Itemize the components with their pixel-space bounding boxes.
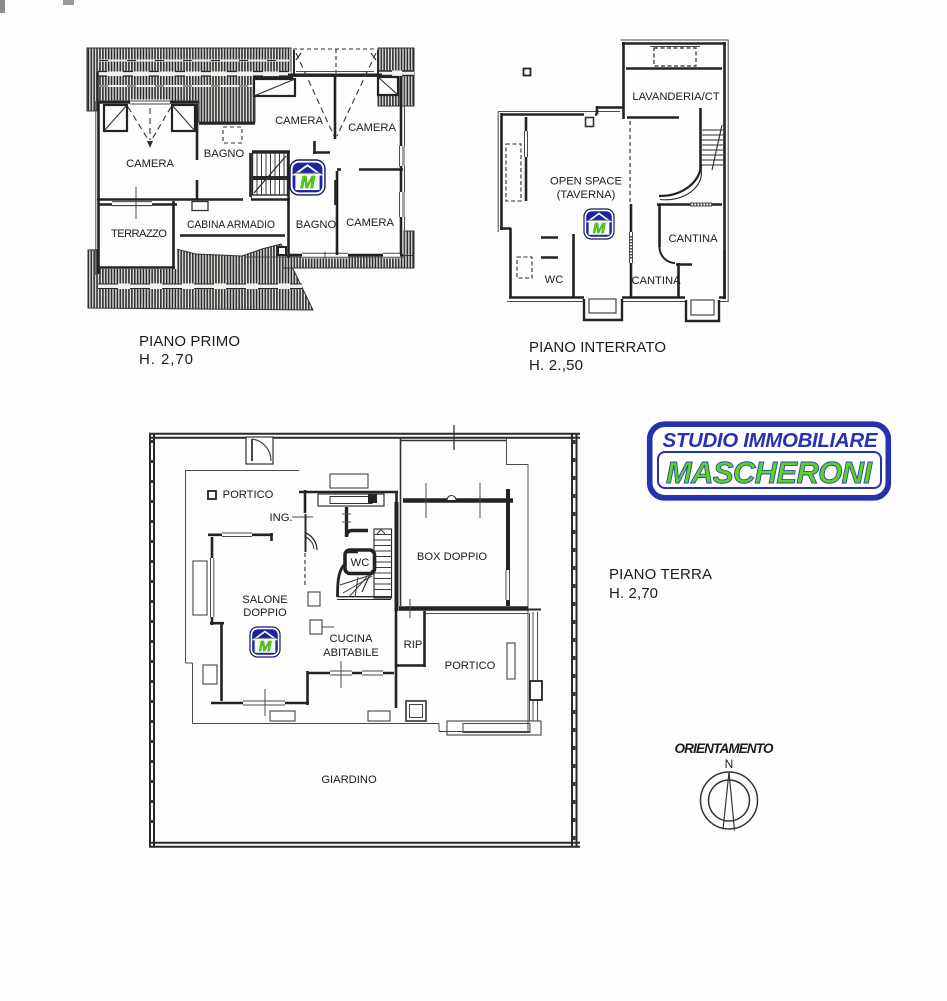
svg-text:CUCINA: CUCINA bbox=[330, 633, 373, 645]
svg-text:CAMERA: CAMERA bbox=[275, 115, 323, 127]
svg-text:ABITABILE: ABITABILE bbox=[323, 647, 379, 659]
svg-text:(TAVERNA): (TAVERNA) bbox=[557, 189, 616, 201]
svg-text:OPEN SPACE: OPEN SPACE bbox=[550, 176, 622, 188]
svg-text:PIANO PRIMO: PIANO PRIMO bbox=[139, 333, 240, 350]
svg-text:TERRAZZO: TERRAZZO bbox=[111, 228, 167, 240]
svg-text:N: N bbox=[725, 757, 734, 771]
svg-text:PIANO INTERRATO: PIANO INTERRATO bbox=[529, 339, 666, 356]
svg-text:BAGNO: BAGNO bbox=[296, 219, 337, 231]
svg-text:MASCHERONI: MASCHERONI bbox=[666, 455, 873, 490]
svg-text:H. 2,70: H. 2,70 bbox=[609, 585, 658, 602]
svg-text:BAGNO: BAGNO bbox=[204, 148, 245, 160]
svg-text:PORTICO: PORTICO bbox=[445, 660, 496, 672]
svg-text:LAVANDERIA/CT: LAVANDERIA/CT bbox=[632, 91, 719, 103]
svg-text:ORIENTAMENTO: ORIENTAMENTO bbox=[675, 741, 774, 756]
svg-text:RIP: RIP bbox=[404, 639, 423, 651]
svg-text:CANTINA: CANTINA bbox=[668, 233, 718, 245]
svg-text:H. 2,70: H. 2,70 bbox=[139, 351, 193, 368]
svg-text:CAMERA: CAMERA bbox=[346, 217, 394, 229]
svg-text:PIANO TERRA: PIANO TERRA bbox=[609, 566, 712, 583]
svg-text:CABINA ARMADIO: CABINA ARMADIO bbox=[187, 219, 275, 231]
svg-text:CANTINA: CANTINA bbox=[631, 275, 681, 287]
svg-text:GIARDINO: GIARDINO bbox=[321, 774, 377, 786]
svg-text:CAMERA: CAMERA bbox=[348, 122, 396, 134]
svg-text:STUDIO IMMOBILIARE: STUDIO IMMOBILIARE bbox=[663, 429, 879, 452]
svg-text:PORTICO: PORTICO bbox=[223, 489, 274, 501]
svg-text:ING.: ING. bbox=[270, 512, 293, 524]
svg-text:BOX DOPPIO: BOX DOPPIO bbox=[417, 551, 488, 563]
svg-text:WC: WC bbox=[545, 274, 564, 286]
svg-text:WC: WC bbox=[351, 557, 370, 569]
svg-text:SALONE: SALONE bbox=[242, 594, 287, 606]
svg-text:H. 2.,50: H. 2.,50 bbox=[529, 357, 583, 374]
svg-text:DOPPIO: DOPPIO bbox=[243, 607, 287, 619]
svg-text:CAMERA: CAMERA bbox=[126, 158, 174, 170]
